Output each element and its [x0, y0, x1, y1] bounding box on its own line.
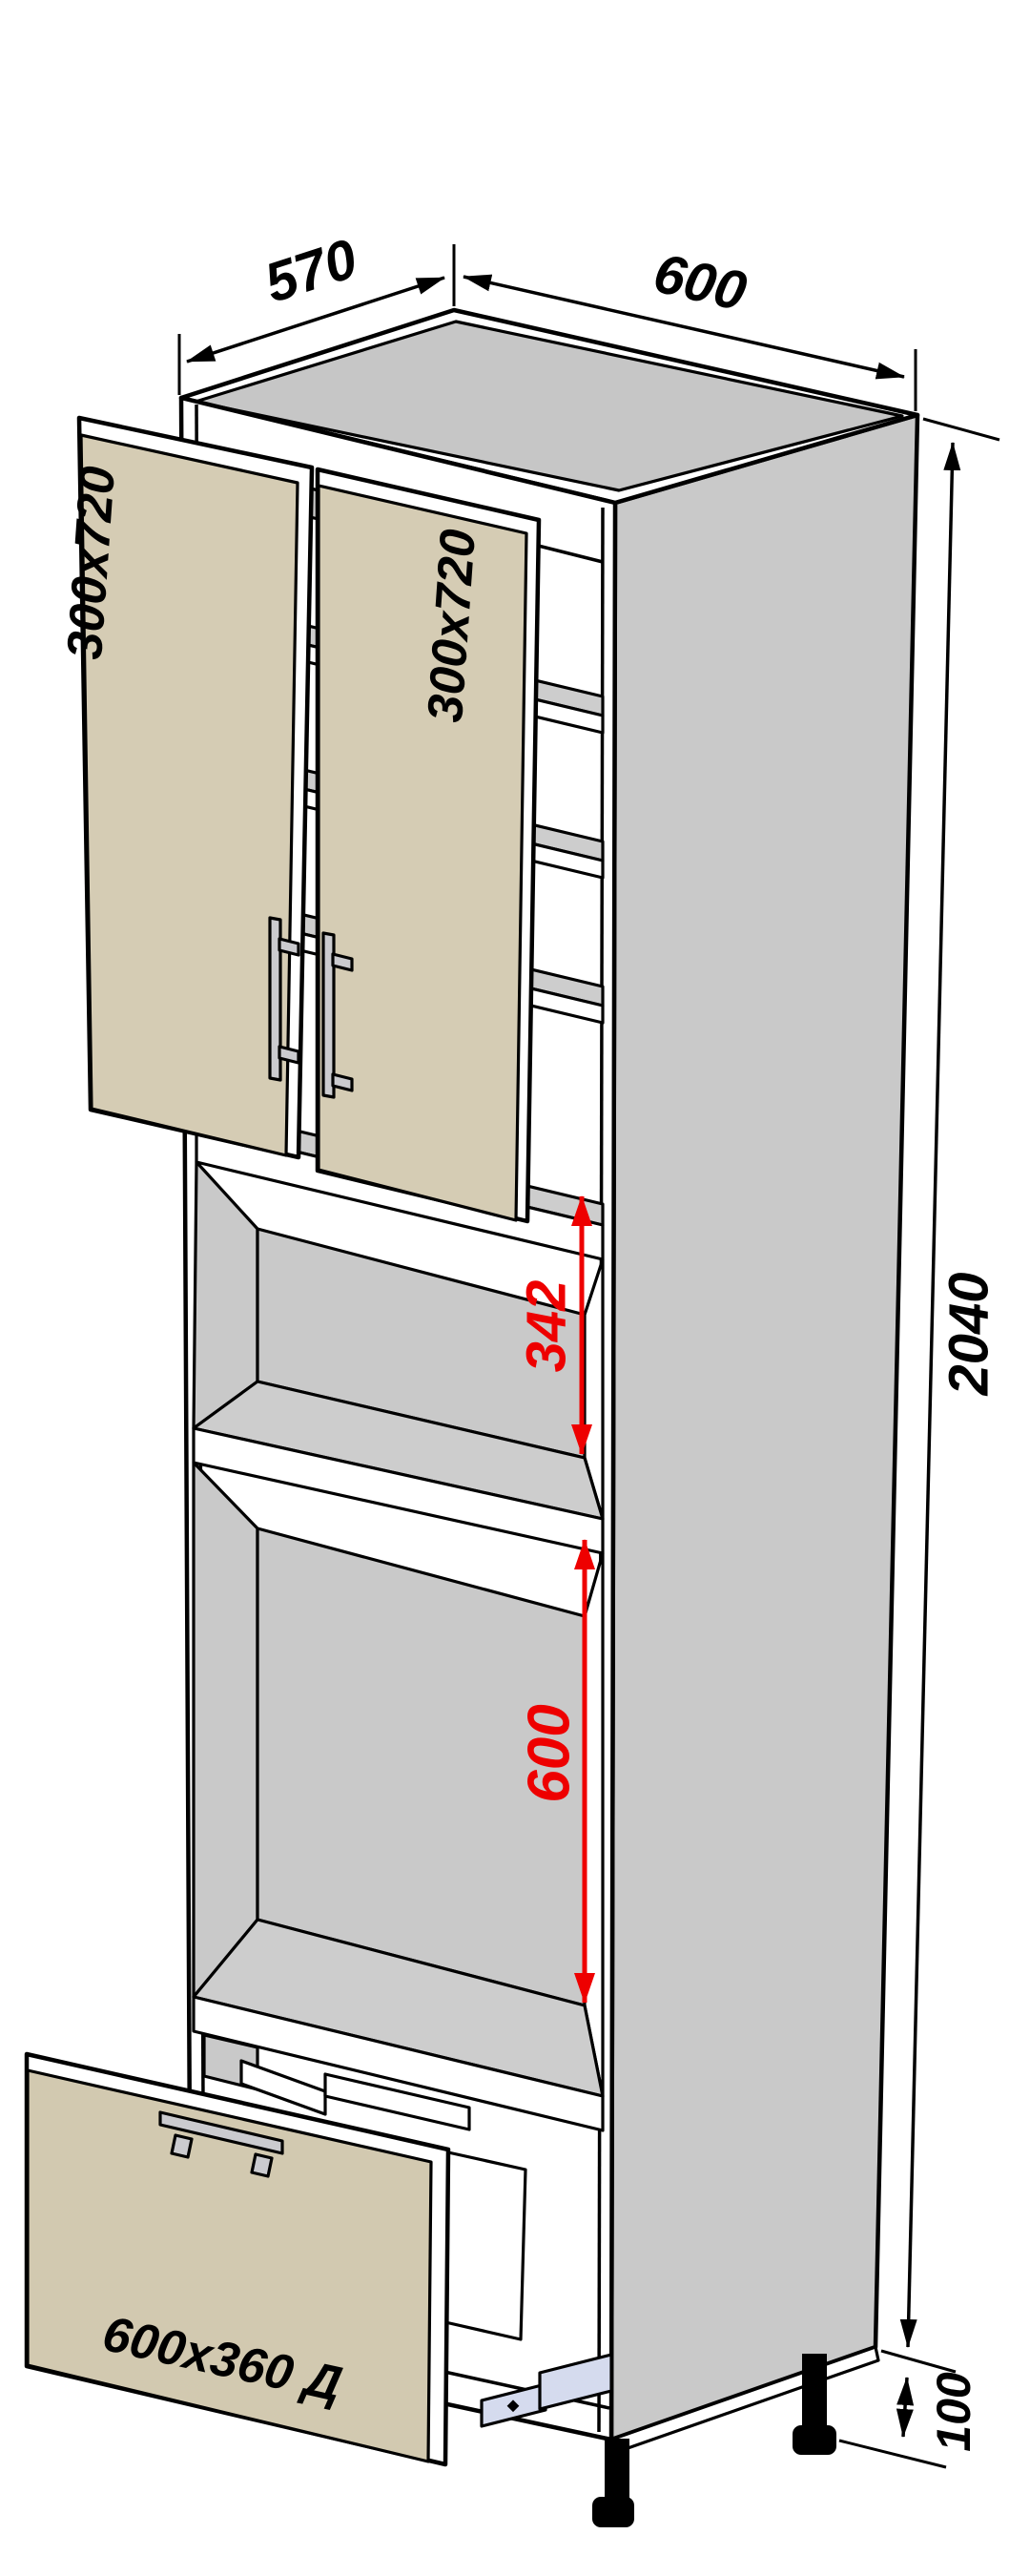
leg-front-foot	[592, 2497, 634, 2527]
dimension-label-600-top: 600	[649, 241, 752, 322]
drawer-handle-foot	[172, 2135, 192, 2157]
leg-back-stem	[802, 2354, 827, 2428]
dimension-legs-100: 100	[839, 2372, 980, 2467]
extension-tick-mid	[881, 2351, 956, 2372]
dimension-label-570: 570	[257, 227, 364, 315]
dimension-line-100	[903, 2378, 907, 2437]
side-panel-right	[611, 415, 917, 2440]
drawer-handle-foot	[252, 2154, 272, 2176]
niche-left-wall	[194, 1463, 257, 1997]
dimension-label-2040: 2040	[938, 1272, 1000, 1396]
door-right: 300x720	[318, 469, 539, 1221]
leg-back-foot	[793, 2425, 836, 2455]
extension-tick-top	[923, 419, 999, 440]
leg-front-stem	[605, 2439, 629, 2500]
dimension-label-100: 100	[927, 2372, 980, 2452]
dimension-label-600: 600	[517, 1704, 583, 1802]
dimension-label-342: 342	[516, 1280, 578, 1373]
door-right-facade	[319, 486, 526, 1220]
cabinet-technical-drawing: 342 600 600x360 Д	[0, 0, 1030, 2576]
assembly-drawing-canvas: 342 600 600x360 Д	[0, 0, 1030, 2576]
door-left: 300x720	[57, 418, 312, 1157]
drawer-box-right-side	[445, 2152, 525, 2339]
